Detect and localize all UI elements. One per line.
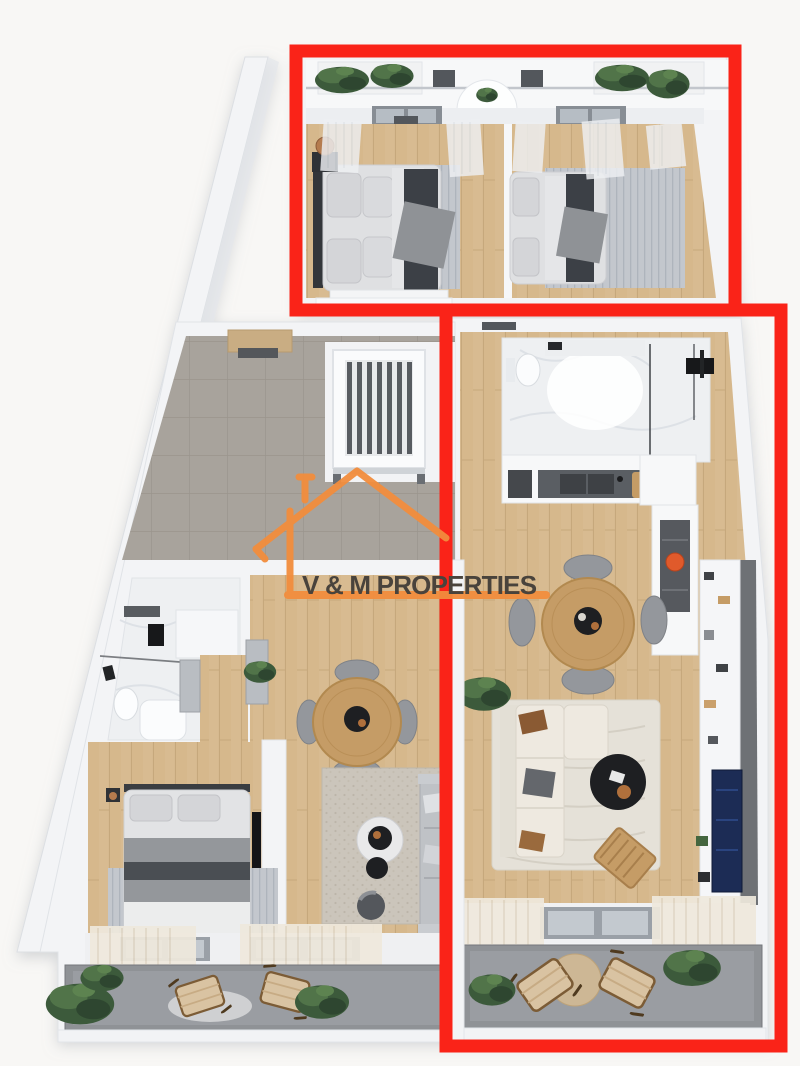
toilet bbox=[516, 354, 540, 386]
staircase bbox=[333, 350, 425, 484]
door-frame bbox=[394, 116, 418, 124]
entry-door bbox=[482, 322, 516, 330]
bedroom-top-right bbox=[510, 118, 716, 298]
balcony-chair bbox=[433, 70, 455, 87]
upper-balcony bbox=[306, 60, 730, 126]
right-apartment bbox=[456, 322, 766, 1042]
shower-tray bbox=[140, 700, 186, 740]
right-balcony bbox=[456, 896, 766, 1042]
tv-wall-unit-right bbox=[696, 560, 758, 905]
left-balcony bbox=[46, 924, 458, 1042]
wardrobe-door bbox=[180, 660, 200, 712]
double-bed bbox=[313, 165, 455, 291]
bedroom-top-left bbox=[306, 116, 504, 304]
tv-screen bbox=[712, 770, 742, 892]
vanity-unit bbox=[176, 610, 238, 658]
toilet bbox=[114, 688, 138, 720]
bathroom-shelf bbox=[124, 606, 160, 617]
double-bed bbox=[510, 172, 608, 284]
bathroom-mirror bbox=[148, 624, 164, 646]
right-bathroom bbox=[502, 338, 714, 462]
floor-plan-canvas bbox=[0, 0, 800, 1066]
living-room-left bbox=[322, 768, 458, 934]
cooking-pot bbox=[666, 553, 684, 571]
side-table bbox=[366, 857, 388, 879]
balcony-chair bbox=[521, 70, 543, 87]
floor-plan-render: V & M PROPERTIES bbox=[0, 0, 800, 1066]
